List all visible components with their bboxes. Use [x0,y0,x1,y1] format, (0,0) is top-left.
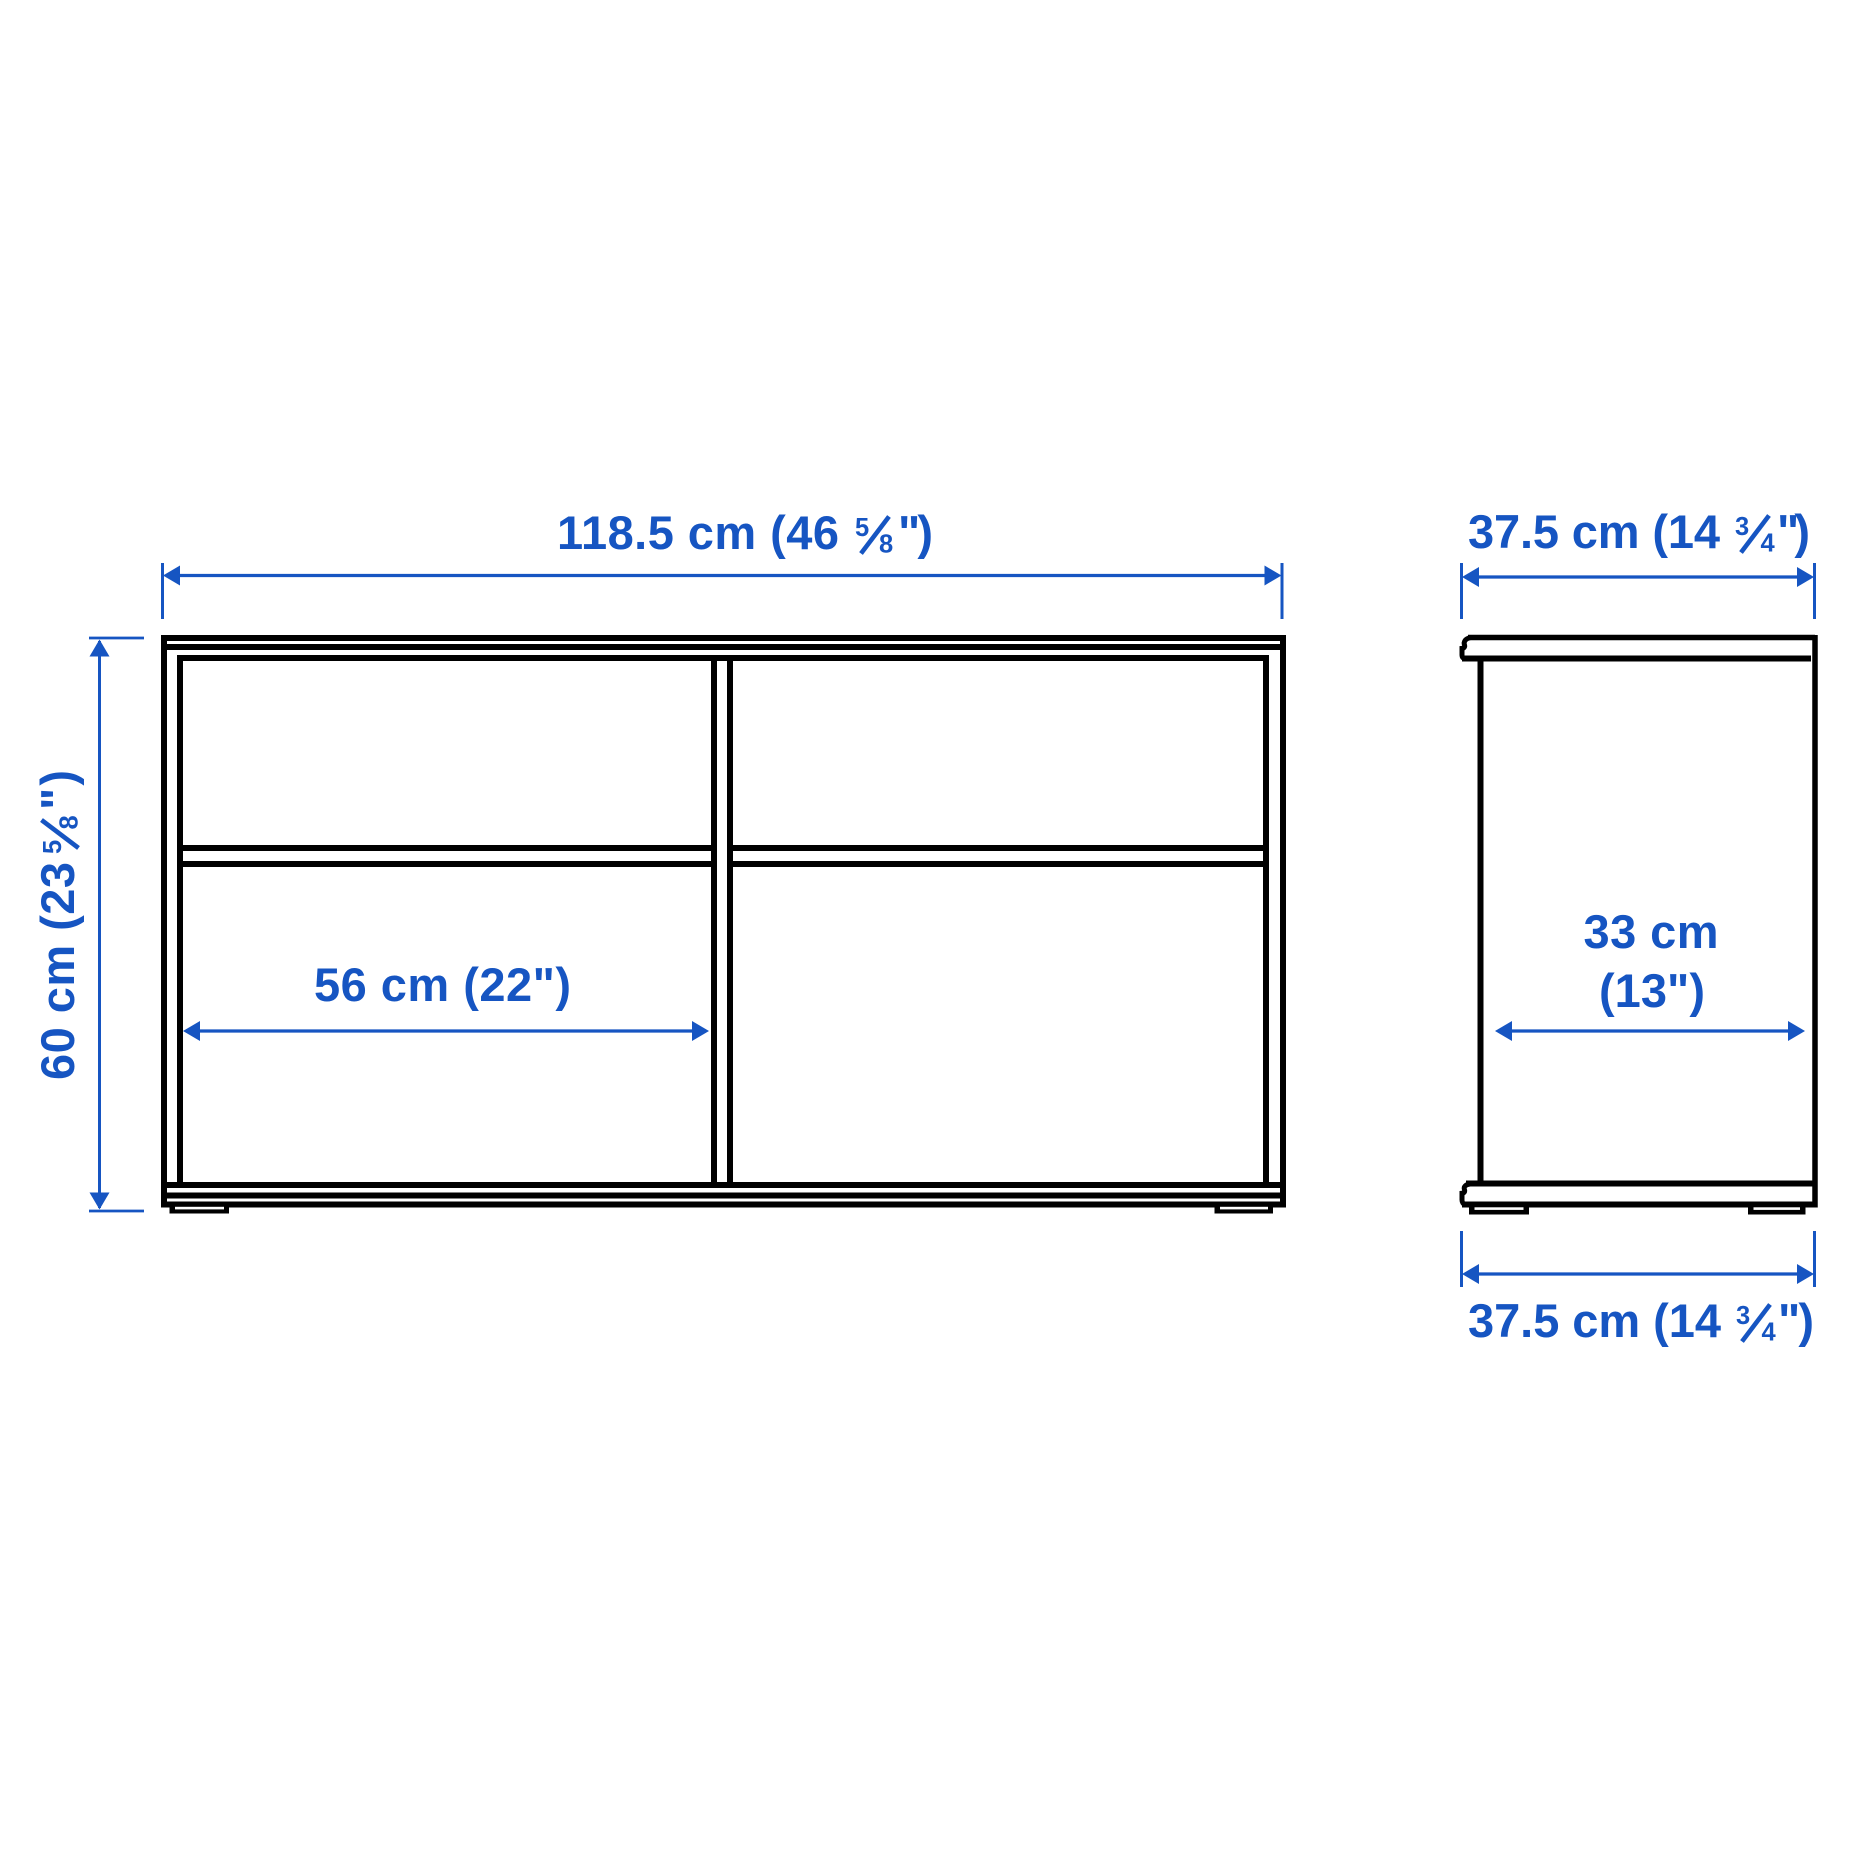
svg-text:"): ") [31,770,84,810]
svg-text:56 cm (22"): 56 cm (22") [314,958,571,1011]
svg-text:3: 3 [1735,513,1749,541]
svg-text:37.5 cm (14: 37.5 cm (14 [1468,1294,1721,1347]
svg-text:"): ") [1777,505,1810,558]
svg-text:118.5 cm (46: 118.5 cm (46 [557,506,839,559]
svg-text:60 cm (23: 60 cm (23 [31,862,84,1080]
svg-text:4: 4 [1761,530,1776,558]
svg-text:5: 5 [855,514,869,542]
svg-text:5: 5 [39,840,67,854]
svg-text:37.5 cm (14: 37.5 cm (14 [1468,505,1720,558]
svg-text:"): ") [1778,1294,1814,1347]
svg-text:(13"): (13") [1599,964,1705,1017]
svg-text:4: 4 [1762,1319,1777,1347]
svg-text:3: 3 [1736,1302,1750,1330]
svg-text:8: 8 [56,815,84,829]
svg-text:33 cm: 33 cm [1584,905,1719,958]
svg-text:8: 8 [879,531,893,559]
svg-text:"): ") [898,506,933,559]
